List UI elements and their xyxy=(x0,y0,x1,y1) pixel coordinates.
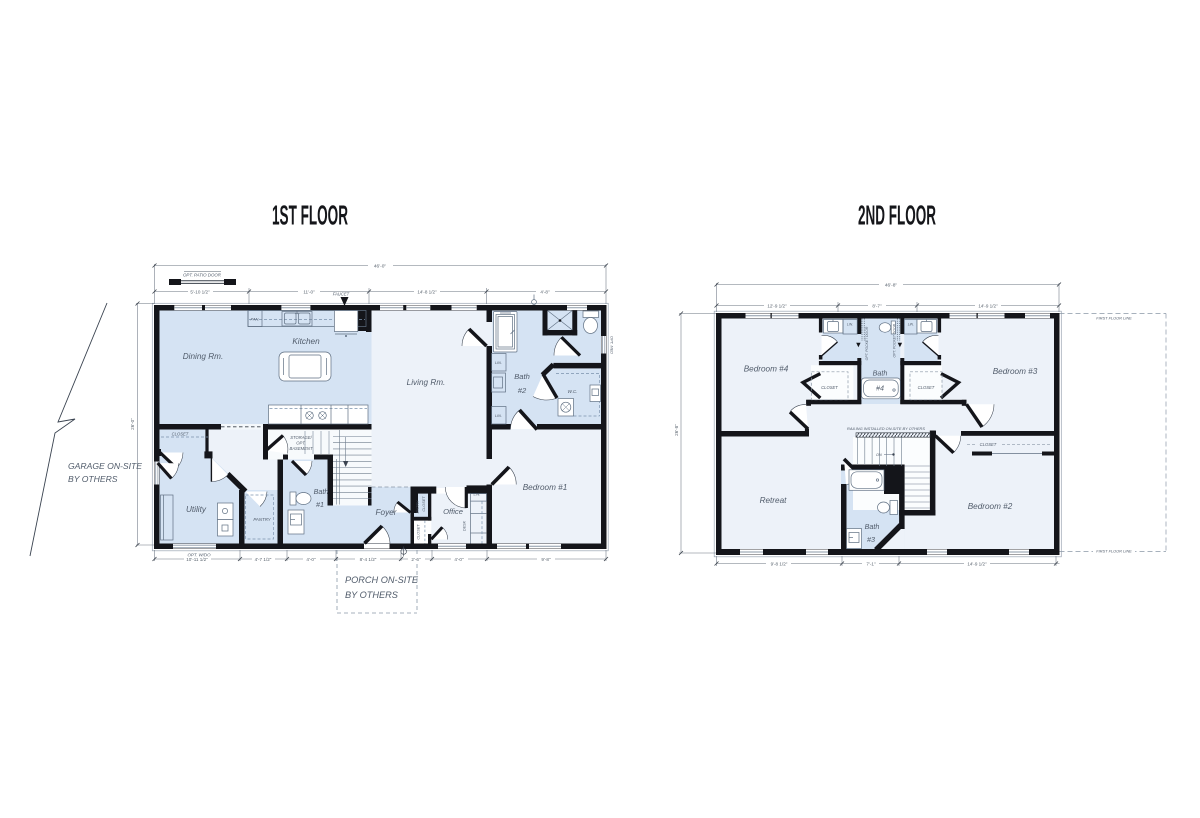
svg-text:46'-8": 46'-8" xyxy=(885,283,898,289)
svg-text:2'-6": 2'-6" xyxy=(411,557,421,562)
svg-text:1ST FLOOR: 1ST FLOOR xyxy=(272,200,348,231)
svg-text:BY OTHERS: BY OTHERS xyxy=(68,474,118,484)
svg-text:CLOSET: CLOSET xyxy=(821,385,838,390)
svg-text:PORCH ON-SITE: PORCH ON-SITE xyxy=(345,575,419,585)
svg-text:Foyer: Foyer xyxy=(376,508,397,517)
svg-text:CLOSET: CLOSET xyxy=(918,385,935,390)
svg-text:10'-11 1/2": 10'-11 1/2" xyxy=(186,557,208,562)
svg-text:26'-8": 26'-8" xyxy=(674,424,679,436)
svg-text:CLOSET: CLOSET xyxy=(422,496,426,512)
svg-text:7'-1": 7'-1" xyxy=(866,562,876,567)
svg-text:46'-0": 46'-0" xyxy=(374,264,387,270)
svg-text:RAILING INSTALLED ON-SITE BY O: RAILING INSTALLED ON-SITE BY OTHERS xyxy=(847,426,925,431)
svg-text:W.C.: W.C. xyxy=(567,389,577,394)
svg-text:14'-8 1/2": 14'-8 1/2" xyxy=(417,290,437,295)
svg-text:OPT. PATIO DOOR: OPT. PATIO DOOR xyxy=(183,273,222,278)
svg-text:4'-7 1/2": 4'-7 1/2" xyxy=(255,557,272,562)
svg-text:9'-8 1/2": 9'-8 1/2" xyxy=(771,562,788,567)
svg-text:14'-9 1/2": 14'-9 1/2" xyxy=(978,304,998,309)
svg-text:26'-0": 26'-0" xyxy=(130,418,135,430)
svg-text:PAN.: PAN. xyxy=(250,317,259,322)
svg-text:Bath: Bath xyxy=(873,369,888,378)
svg-text:CLOSET: CLOSET xyxy=(417,524,421,540)
svg-text:Living Rm.: Living Rm. xyxy=(407,378,446,387)
svg-text:4'-8": 4'-8" xyxy=(540,290,550,295)
svg-text:STORAGE/: STORAGE/ xyxy=(290,435,312,440)
svg-text:Bath: Bath xyxy=(514,372,530,381)
svg-text:8'-7": 8'-7" xyxy=(872,304,882,309)
svg-text:LIN.: LIN. xyxy=(847,323,853,327)
svg-text:ENTRY: ENTRY xyxy=(416,500,420,513)
svg-text:Bath: Bath xyxy=(314,487,329,496)
svg-text:4'-0": 4'-0" xyxy=(454,557,464,562)
svg-text:GARAGE ON-SITE: GARAGE ON-SITE xyxy=(68,461,142,471)
svg-text:#1: #1 xyxy=(316,500,324,509)
svg-text:11'-0": 11'-0" xyxy=(303,290,315,295)
svg-text:LIN.: LIN. xyxy=(908,323,914,327)
svg-text:#3: #3 xyxy=(867,535,875,544)
svg-text:CLOSET: CLOSET xyxy=(980,442,997,447)
svg-text:Office: Office xyxy=(443,507,463,516)
svg-text:Bedroom #3: Bedroom #3 xyxy=(993,367,1038,376)
svg-text:Kitchen: Kitchen xyxy=(292,337,320,346)
svg-text:Retreat: Retreat xyxy=(760,496,788,505)
svg-text:LIN.: LIN. xyxy=(495,361,502,365)
svg-text:Utility: Utility xyxy=(186,505,207,514)
svg-text:12'-9 1/2": 12'-9 1/2" xyxy=(767,304,787,309)
svg-text:Bedroom #4: Bedroom #4 xyxy=(744,365,789,374)
svg-text:14'-9 1/2": 14'-9 1/2" xyxy=(967,562,987,567)
svg-text:PANTRY: PANTRY xyxy=(253,517,271,522)
svg-text:OPT.: OPT. xyxy=(296,441,305,446)
svg-text:2ND FLOOR: 2ND FLOOR xyxy=(858,200,936,231)
svg-text:DN: DN xyxy=(876,453,882,457)
svg-text:FIRST FLOOR LINE: FIRST FLOOR LINE xyxy=(1096,316,1132,321)
svg-text:OPT. POCKET DOOR: OPT. POCKET DOOR xyxy=(865,326,869,360)
svg-text:Bedroom #2: Bedroom #2 xyxy=(968,502,1013,511)
svg-text:BASEMENT: BASEMENT xyxy=(289,446,312,451)
svg-text:DESK: DESK xyxy=(463,520,467,531)
svg-text:FAUCET: FAUCET xyxy=(333,292,350,297)
svg-text:OPT. MED: OPT. MED xyxy=(610,336,614,354)
svg-text:OPT. POCKET DOOR: OPT. POCKET DOOR xyxy=(893,323,897,357)
svg-text:FIRST FLOOR LINE: FIRST FLOOR LINE xyxy=(1096,549,1132,554)
svg-text:5'-10 1/2": 5'-10 1/2" xyxy=(190,290,210,295)
svg-text:LIN.: LIN. xyxy=(474,493,481,497)
svg-text:#4: #4 xyxy=(876,384,884,393)
svg-text:8'-4 1/2": 8'-4 1/2" xyxy=(360,557,377,562)
svg-text:BY OTHERS: BY OTHERS xyxy=(345,590,399,600)
svg-text:#2: #2 xyxy=(518,386,527,395)
svg-text:4'-0": 4'-0" xyxy=(306,557,316,562)
svg-text:LIN.: LIN. xyxy=(495,414,502,418)
svg-text:Dining Rm.: Dining Rm. xyxy=(183,352,224,361)
svg-text:CLOSET: CLOSET xyxy=(172,432,189,437)
svg-text:9'-8": 9'-8" xyxy=(541,557,551,562)
svg-text:Bedroom #1: Bedroom #1 xyxy=(523,483,568,492)
svg-text:Bath: Bath xyxy=(865,522,880,531)
